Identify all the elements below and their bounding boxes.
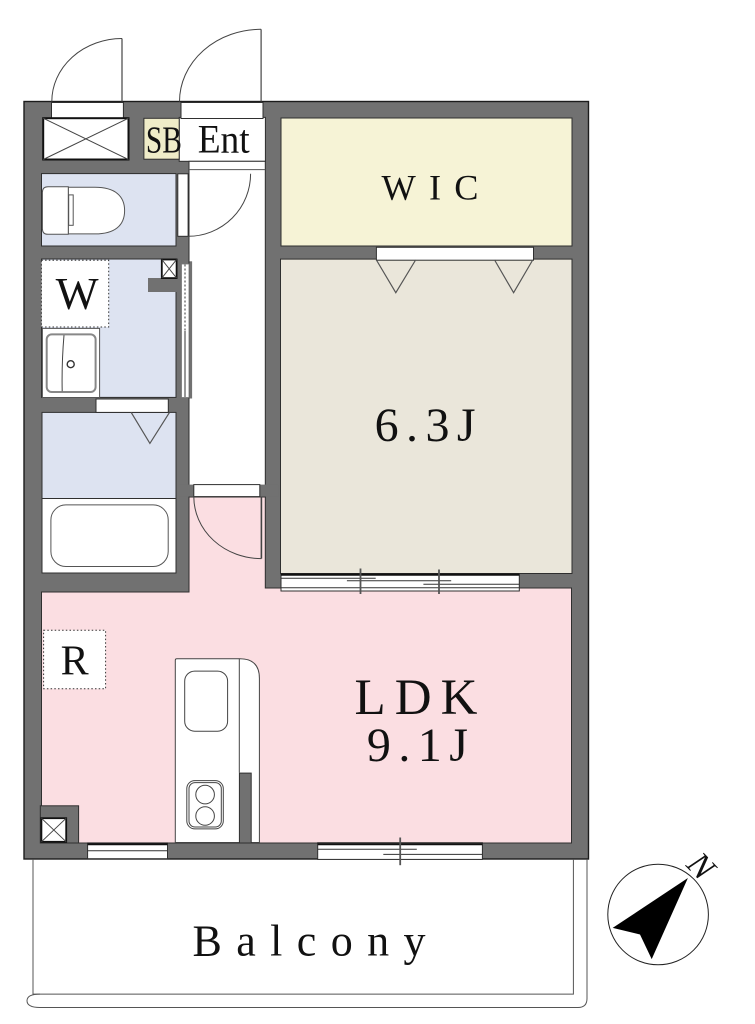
svg-text:R: R [61,638,89,684]
svg-text:LDK: LDK [355,670,478,726]
svg-text:6.3J: 6.3J [375,399,476,452]
svg-text:SB: SB [146,120,182,162]
svg-text:WIC: WIC [382,168,479,208]
svg-text:9.1J: 9.1J [367,719,468,772]
svg-text:W: W [56,268,99,319]
svg-text:Ent: Ent [198,117,250,162]
